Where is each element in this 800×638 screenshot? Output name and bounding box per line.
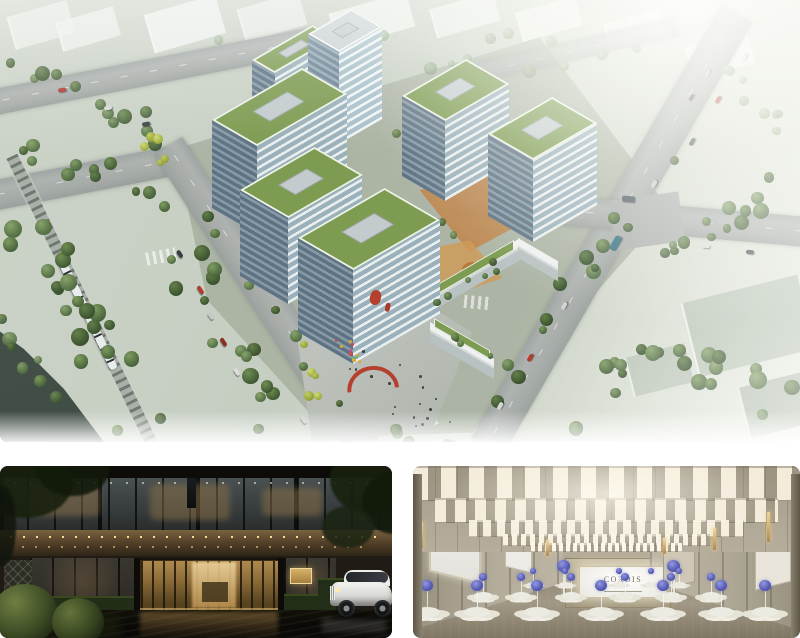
centerpiece-stand [625, 579, 627, 595]
tree [660, 248, 669, 257]
tree [739, 76, 748, 85]
tree [608, 212, 620, 224]
tree [155, 413, 166, 424]
centerpiece-stand [571, 579, 573, 595]
floral-centerpiece [567, 573, 576, 581]
floral-centerpiece [759, 580, 771, 591]
car [207, 311, 214, 320]
tree [610, 388, 621, 399]
tree [772, 127, 781, 136]
centerpiece-stand [663, 588, 665, 610]
floral-centerpiece [676, 568, 682, 574]
pedestrian-dot [419, 375, 422, 378]
tree [140, 106, 152, 118]
bus [622, 195, 635, 202]
pedestrian-dot [422, 386, 425, 389]
lobby-furniture-silhouette [202, 582, 228, 602]
centerpiece-stand [765, 588, 767, 610]
tree [300, 341, 308, 349]
car [233, 367, 240, 376]
tree [61, 242, 75, 256]
tree [757, 409, 768, 420]
tree [3, 237, 18, 252]
tree [546, 36, 557, 47]
tree [124, 351, 140, 367]
ballroom-panel: CORDIS CORDIS [413, 466, 800, 638]
centerpiece-stand [651, 572, 653, 583]
interior-glow [262, 488, 322, 516]
pedestrian-dot [355, 368, 357, 370]
floral-centerpiece [471, 580, 483, 591]
tree [200, 296, 209, 305]
floral-centerpiece [531, 580, 543, 591]
car-shadow [330, 614, 392, 620]
tree [485, 33, 496, 44]
tree [90, 171, 101, 182]
floral-centerpiece [648, 568, 654, 574]
tree [705, 378, 717, 390]
background-building [737, 365, 800, 438]
tree [167, 255, 176, 264]
pedestrian-dot [413, 416, 415, 418]
tree [299, 362, 308, 371]
centerpiece-stand [711, 579, 713, 595]
tree [112, 425, 123, 436]
car [176, 249, 183, 258]
pedestrian-dot [370, 375, 373, 378]
car-headlight [335, 588, 340, 592]
tree [207, 338, 218, 349]
tree [670, 156, 679, 165]
background-building [681, 275, 800, 378]
tree [645, 345, 661, 361]
tree [0, 314, 7, 324]
tree [242, 368, 259, 385]
car [300, 415, 307, 424]
tree [34, 356, 43, 365]
tree-foliage [322, 506, 374, 548]
tree [723, 224, 732, 233]
floral-centerpiece [657, 580, 669, 591]
pedestrian-dot [388, 382, 391, 385]
floral-centerpiece [616, 568, 622, 574]
renderings-collage: CORDIS CORDIS [0, 0, 800, 638]
centerpiece-stand [679, 572, 681, 583]
tree [253, 424, 264, 435]
centerpiece-stand [521, 579, 523, 595]
tree [623, 223, 633, 233]
tree [79, 303, 95, 319]
tree [19, 146, 28, 155]
foreground-door-frame [791, 474, 800, 638]
tree [35, 219, 52, 236]
tree [104, 157, 117, 170]
tree [707, 233, 716, 242]
banquet-table-area [413, 466, 800, 638]
pedestrian-dot [349, 368, 351, 370]
tree [74, 354, 89, 369]
tree [210, 229, 220, 239]
tree [482, 273, 488, 279]
floral-centerpiece [621, 573, 630, 581]
pedestrian-dot [362, 350, 365, 353]
tree [261, 380, 274, 393]
tree [390, 424, 401, 435]
tree [6, 58, 16, 68]
centerpiece-stand [477, 588, 479, 610]
tree [194, 245, 210, 261]
tree [241, 351, 252, 362]
door-pier [134, 558, 140, 612]
tree [169, 281, 183, 295]
roof-mechanical-unit [435, 78, 476, 102]
centerpiece-stand [565, 572, 567, 583]
tree [502, 359, 514, 371]
tree [740, 205, 752, 217]
car [746, 250, 754, 254]
tree [488, 353, 494, 359]
tree [27, 156, 37, 166]
tree [579, 250, 594, 265]
car [714, 95, 721, 104]
centerpiece-stand [427, 588, 429, 610]
tree [759, 108, 770, 119]
tree [511, 370, 526, 385]
tree [35, 66, 50, 81]
tree [503, 28, 514, 39]
tree [677, 356, 692, 371]
tree [669, 241, 677, 249]
floral-centerpiece [479, 573, 488, 581]
crosswalk [463, 295, 490, 310]
balloon-dot [335, 339, 338, 342]
tree [632, 45, 640, 53]
canopy-light-dots [22, 546, 370, 548]
balloon-dot [356, 354, 359, 357]
white-luxury-car [330, 562, 392, 626]
tree [753, 203, 769, 219]
tree [749, 371, 767, 389]
tree [41, 264, 55, 278]
tree [403, 436, 415, 442]
tree [596, 49, 608, 61]
tree [71, 328, 89, 346]
tree [673, 344, 686, 357]
lit-signage-plaque [290, 568, 312, 584]
balloon-dot [340, 345, 343, 348]
tree [569, 421, 584, 436]
car [196, 285, 204, 295]
centerpiece-stand [671, 579, 673, 595]
door-reflection [140, 612, 278, 638]
floral-centerpiece [707, 573, 716, 581]
roof-mechanical-unit [277, 168, 324, 195]
floral-centerpiece [530, 568, 536, 574]
tree [255, 392, 266, 403]
tree [140, 142, 149, 151]
balloon-dot [353, 357, 355, 359]
balloon-dot [358, 360, 361, 363]
tree [207, 262, 222, 277]
pendant-lamp [187, 478, 196, 508]
car [688, 137, 695, 146]
roof-mechanical-unit [341, 213, 395, 244]
tree [784, 380, 800, 396]
tree [560, 62, 569, 71]
tree [446, 440, 459, 442]
tree [599, 359, 614, 374]
floral-centerpiece [595, 580, 607, 591]
tree [143, 186, 156, 199]
tree [451, 333, 459, 341]
tree [26, 139, 39, 152]
tree [539, 326, 547, 334]
tree [4, 220, 22, 238]
tree [61, 168, 74, 181]
pedestrian-dot [426, 417, 428, 419]
tree [17, 362, 28, 373]
topiary-sphere [52, 598, 104, 638]
car [219, 337, 227, 347]
tree [523, 65, 536, 78]
tree [214, 35, 224, 45]
centerpiece-stand [601, 588, 603, 610]
tree [444, 292, 452, 300]
floral-centerpiece [715, 580, 727, 591]
floral-centerpiece [667, 573, 676, 581]
tree [596, 239, 610, 253]
tree [540, 313, 553, 326]
tree [104, 320, 115, 331]
roof-mechanical-unit [521, 116, 562, 140]
foreground-door-frame [413, 474, 422, 638]
balloon-dot [349, 352, 353, 356]
roof-mechanical-unit [253, 92, 304, 122]
tree [101, 345, 115, 359]
tree [202, 211, 213, 222]
tree [775, 110, 783, 118]
car [702, 244, 710, 248]
tree [159, 201, 170, 212]
tree [132, 187, 141, 196]
roof-mechanical-unit [331, 22, 360, 38]
tree [304, 391, 314, 401]
tree [153, 134, 163, 144]
floral-centerpiece [517, 573, 526, 581]
tree [739, 96, 749, 106]
tree [60, 305, 72, 317]
tree [678, 236, 691, 249]
centerpiece-stand [619, 572, 621, 583]
tree [764, 172, 775, 183]
tree [312, 373, 319, 380]
centerpiece-stand [537, 588, 539, 610]
centerpiece-stand [721, 588, 723, 610]
pedestrian-dot [421, 423, 424, 426]
tree [450, 231, 457, 238]
floral-centerpiece [562, 568, 568, 574]
aerial-masterplan-panel [0, 0, 800, 442]
floral-centerpiece [421, 580, 433, 591]
hotel-entrance-panel [0, 466, 392, 638]
pedestrian-dot [449, 421, 451, 423]
